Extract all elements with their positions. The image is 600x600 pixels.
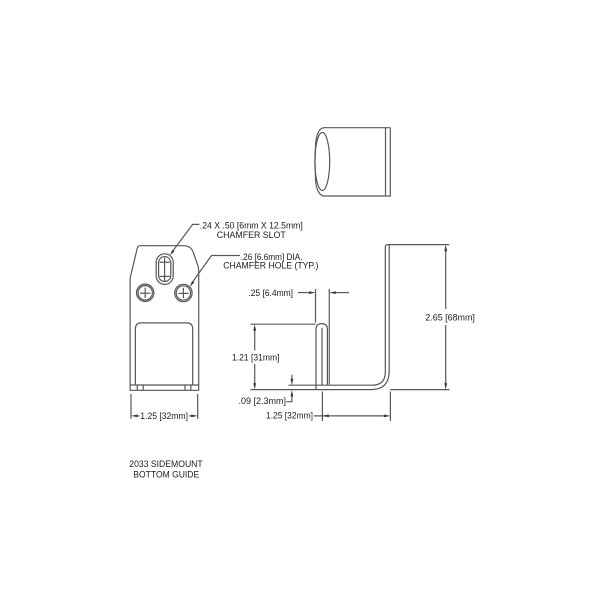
svg-text:1.21 [31mm]: 1.21 [31mm]: [232, 352, 280, 363]
svg-text:.25 [6.4mm]: .25 [6.4mm]: [248, 288, 293, 299]
svg-text:1.25 [32mm]: 1.25 [32mm]: [266, 410, 313, 421]
svg-text:CHAMFER HOLE (TYP.): CHAMFER HOLE (TYP.): [223, 261, 318, 272]
svg-text:CHAMFER SLOT: CHAMFER SLOT: [217, 230, 286, 241]
svg-text:1.25 [32mm]: 1.25 [32mm]: [140, 411, 188, 422]
svg-text:.09 [2.3mm]: .09 [2.3mm]: [239, 396, 287, 407]
svg-text:BOTTOM GUIDE: BOTTOM GUIDE: [133, 469, 199, 480]
svg-text:2.65 [68mm]: 2.65 [68mm]: [425, 312, 475, 323]
svg-text:2033 SIDEMOUNT: 2033 SIDEMOUNT: [129, 459, 203, 470]
